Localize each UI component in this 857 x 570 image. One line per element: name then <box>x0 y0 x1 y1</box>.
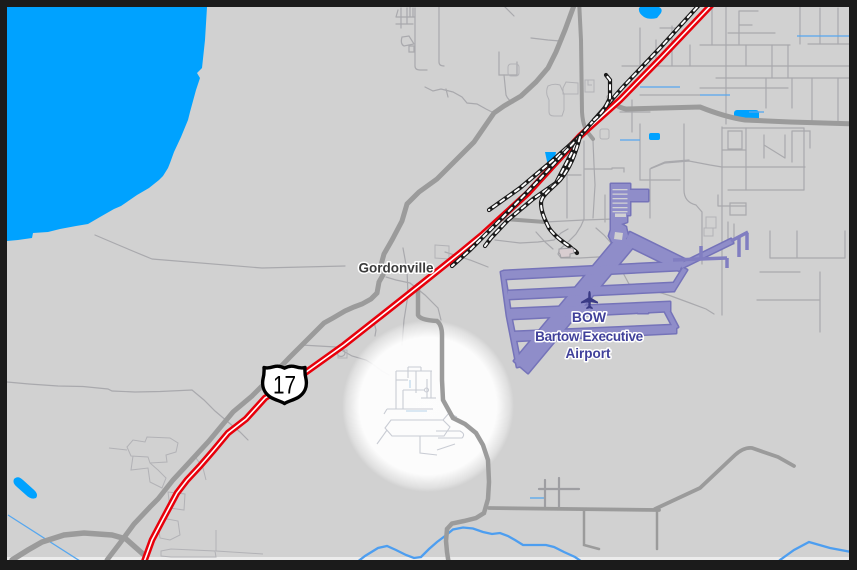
svg-text:17: 17 <box>273 372 296 400</box>
svg-text:Bartow Executive: Bartow Executive <box>535 329 644 344</box>
svg-text:Gordonville: Gordonville <box>358 261 434 276</box>
svg-text:BOW: BOW <box>572 309 607 325</box>
svg-text:Airport: Airport <box>566 346 612 361</box>
